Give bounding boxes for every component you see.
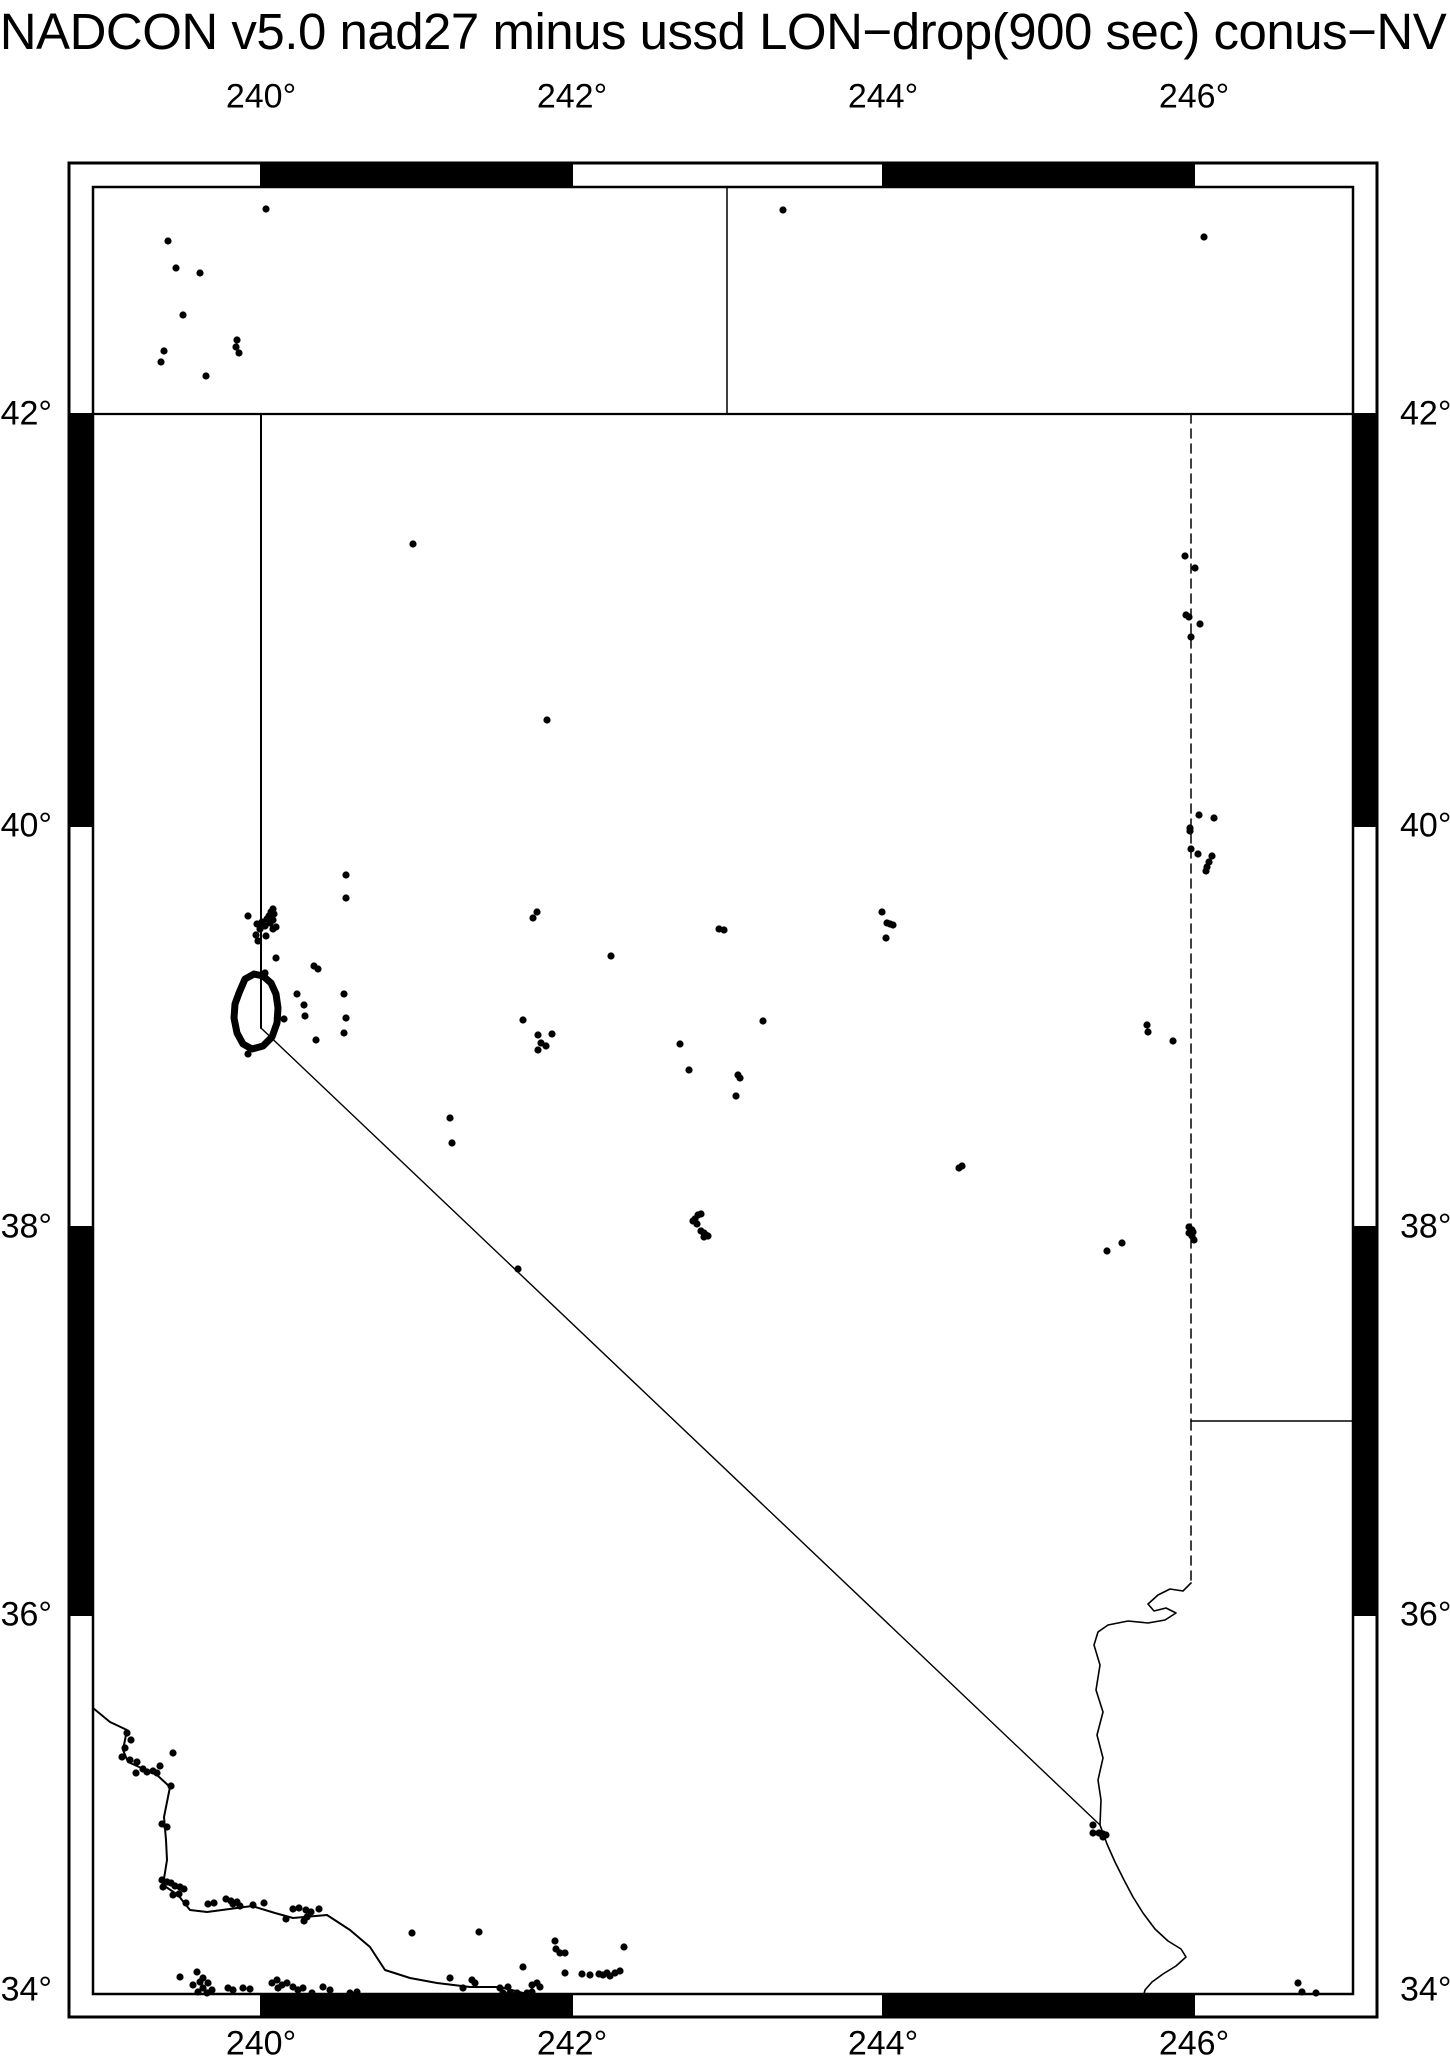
data-point xyxy=(176,1973,183,1980)
data-point xyxy=(229,1986,236,1993)
tick-label-right-40°: 40° xyxy=(1400,807,1450,846)
data-point xyxy=(1191,564,1198,571)
data-point xyxy=(308,1989,315,1996)
data-point xyxy=(616,1967,623,1974)
data-point xyxy=(236,1902,243,1909)
data-point xyxy=(1312,1989,1319,1996)
pacific-coastline xyxy=(93,1708,527,1994)
data-point xyxy=(1202,867,1209,874)
data-point xyxy=(301,1012,308,1019)
data-point xyxy=(1190,1236,1197,1243)
data-point xyxy=(260,1899,267,1906)
data-point xyxy=(353,1988,360,1995)
data-point xyxy=(446,1114,453,1121)
frame-band-black-bottom xyxy=(883,1994,1194,2017)
data-point xyxy=(1186,827,1193,834)
map-canvas xyxy=(0,0,1450,2068)
data-point xyxy=(160,347,167,354)
data-point xyxy=(519,1963,526,1970)
data-point xyxy=(282,1915,289,1922)
data-point xyxy=(446,1974,453,1981)
data-point xyxy=(118,1753,125,1760)
data-point xyxy=(202,372,209,379)
data-point xyxy=(189,1981,196,1988)
data-point xyxy=(1143,1021,1150,1028)
data-point xyxy=(519,1016,526,1023)
data-point xyxy=(459,1984,466,1991)
data-point xyxy=(551,1937,558,1944)
data-point xyxy=(208,1986,215,1993)
data-point xyxy=(312,1036,319,1043)
data-point xyxy=(878,908,885,915)
data-point xyxy=(169,1749,176,1756)
tick-label-top-240°: 240° xyxy=(226,78,296,117)
data-point xyxy=(319,1983,326,1990)
data-point xyxy=(475,1928,482,1935)
data-point xyxy=(759,1017,766,1024)
data-point xyxy=(314,965,321,972)
data-points xyxy=(118,205,1319,1997)
data-point xyxy=(175,1890,182,1897)
frame-band-black-top xyxy=(883,163,1194,187)
data-point xyxy=(1118,1239,1125,1246)
frame-band-black-right xyxy=(1353,1227,1377,1615)
data-point xyxy=(254,937,261,944)
data-point xyxy=(299,1984,306,1991)
data-point xyxy=(262,205,269,212)
data-point xyxy=(123,1729,130,1736)
data-point xyxy=(1169,1037,1176,1044)
tick-label-bottom-244°: 244° xyxy=(848,2025,918,2064)
tick-label-top-246°: 246° xyxy=(1159,78,1229,117)
data-point xyxy=(529,914,536,921)
data-point xyxy=(685,1066,692,1073)
data-point xyxy=(1187,845,1194,852)
data-point xyxy=(342,871,349,878)
data-point xyxy=(249,1901,256,1908)
data-point xyxy=(326,1986,333,1993)
data-point xyxy=(700,1233,707,1240)
data-point xyxy=(235,349,242,356)
data-point xyxy=(182,1899,189,1906)
data-point xyxy=(167,1782,174,1789)
data-point xyxy=(300,1917,307,1924)
data-point xyxy=(153,1769,160,1776)
data-point xyxy=(408,1929,415,1936)
data-point xyxy=(1181,552,1188,559)
data-point xyxy=(1089,1821,1096,1828)
data-point xyxy=(270,910,277,917)
data-point xyxy=(882,934,889,941)
plot-page: NADCON v5.0 nad27 minus ussd LON−drop(90… xyxy=(0,0,1450,2068)
tick-label-left-34°: 34° xyxy=(1,1971,52,2010)
data-point xyxy=(246,1985,253,1992)
data-point xyxy=(340,1029,347,1036)
data-point xyxy=(1103,1247,1110,1254)
data-point xyxy=(193,1968,200,1975)
data-point xyxy=(534,1046,541,1053)
data-point xyxy=(262,932,269,939)
data-point xyxy=(536,1983,543,1990)
frame-inner xyxy=(93,187,1353,1994)
data-point xyxy=(346,1989,353,1996)
data-point xyxy=(239,1984,246,1991)
data-point xyxy=(561,1949,568,1956)
data-point xyxy=(196,269,203,276)
data-point xyxy=(194,1988,201,1995)
border-california-nevada-diagonal xyxy=(261,1028,1100,1825)
data-point xyxy=(244,1050,251,1057)
data-point xyxy=(736,1074,743,1081)
data-point xyxy=(163,1823,170,1830)
tick-label-bottom-242°: 242° xyxy=(537,2025,607,2064)
data-point xyxy=(448,1139,455,1146)
data-point xyxy=(676,1040,683,1047)
data-point xyxy=(506,1989,513,1996)
data-point xyxy=(342,1014,349,1021)
data-point xyxy=(1144,1028,1151,1035)
tick-label-top-244°: 244° xyxy=(848,78,918,117)
data-point xyxy=(561,1969,568,1976)
frame-band-black-bottom xyxy=(261,1994,572,2017)
data-point xyxy=(280,1015,287,1022)
data-point xyxy=(720,926,727,933)
data-point xyxy=(132,1769,139,1776)
data-point xyxy=(315,1905,322,1912)
data-point xyxy=(528,1988,535,1995)
data-point xyxy=(295,1904,302,1911)
data-point xyxy=(157,358,164,365)
data-point xyxy=(499,1989,506,1996)
data-point xyxy=(533,908,540,915)
tick-label-right-42°: 42° xyxy=(1400,395,1450,434)
data-point xyxy=(1196,620,1203,627)
data-point xyxy=(1294,1979,1301,1986)
data-point xyxy=(889,921,896,928)
frame-band-black-right xyxy=(1353,414,1377,826)
data-point xyxy=(256,925,263,932)
data-point xyxy=(534,1031,541,1038)
data-point xyxy=(1102,1831,1109,1838)
data-point xyxy=(620,1943,627,1950)
data-point xyxy=(289,1905,296,1912)
frame-band-black-top xyxy=(261,163,572,187)
data-point xyxy=(164,237,171,244)
tick-label-right-36°: 36° xyxy=(1400,1596,1450,1635)
data-point xyxy=(274,1984,281,1991)
data-point xyxy=(779,206,786,213)
data-point xyxy=(156,1762,163,1769)
data-point xyxy=(127,1736,134,1743)
tick-label-bottom-240°: 240° xyxy=(226,2025,296,2064)
data-point xyxy=(542,1042,549,1049)
data-point xyxy=(121,1744,128,1751)
data-point xyxy=(578,1970,585,1977)
data-point xyxy=(958,1162,965,1169)
frame-band-black-left xyxy=(69,414,93,826)
data-point xyxy=(1200,233,1207,240)
tick-label-bottom-246°: 246° xyxy=(1159,2025,1229,2064)
data-point xyxy=(272,923,279,930)
data-point xyxy=(126,1756,133,1763)
data-point xyxy=(233,336,240,343)
data-point xyxy=(283,1979,290,1986)
colorado-river xyxy=(1094,1583,1191,1994)
lake-tahoe-outline xyxy=(234,974,278,1049)
data-point xyxy=(543,716,550,723)
data-point xyxy=(300,1001,307,1008)
data-point xyxy=(340,990,347,997)
data-point xyxy=(1298,1988,1305,1995)
data-point xyxy=(272,954,279,961)
data-point xyxy=(133,1758,140,1765)
data-point xyxy=(586,1971,593,1978)
data-point xyxy=(409,540,416,547)
data-point xyxy=(293,990,300,997)
data-point xyxy=(693,1220,700,1227)
tick-label-left-38°: 38° xyxy=(1,1208,52,1247)
data-point xyxy=(607,952,614,959)
tick-label-right-38°: 38° xyxy=(1400,1208,1450,1247)
data-point xyxy=(732,1092,739,1099)
data-point xyxy=(342,894,349,901)
data-point xyxy=(204,1900,211,1907)
data-point xyxy=(514,1265,521,1272)
tick-label-left-42°: 42° xyxy=(1,395,52,434)
data-point xyxy=(210,1899,217,1906)
data-point xyxy=(697,1210,704,1217)
data-point xyxy=(1194,850,1201,857)
frame-outer xyxy=(69,163,1377,2017)
tick-label-right-34°: 34° xyxy=(1400,1971,1450,2010)
data-point xyxy=(244,912,251,919)
data-point xyxy=(548,1030,555,1037)
data-point xyxy=(172,264,179,271)
data-point xyxy=(179,311,186,318)
data-point xyxy=(143,1768,150,1775)
data-point xyxy=(1210,814,1217,821)
data-point xyxy=(471,1979,478,1986)
tick-label-left-40°: 40° xyxy=(1,807,52,846)
data-point xyxy=(1187,633,1194,640)
data-point xyxy=(1185,613,1192,620)
data-point xyxy=(261,969,268,976)
tick-label-left-36°: 36° xyxy=(1,1596,52,1635)
data-point xyxy=(169,1891,176,1898)
tick-label-top-242°: 242° xyxy=(537,78,607,117)
data-point xyxy=(1195,811,1202,818)
frame-band-black-left xyxy=(69,1227,93,1615)
data-point xyxy=(514,1990,521,1997)
